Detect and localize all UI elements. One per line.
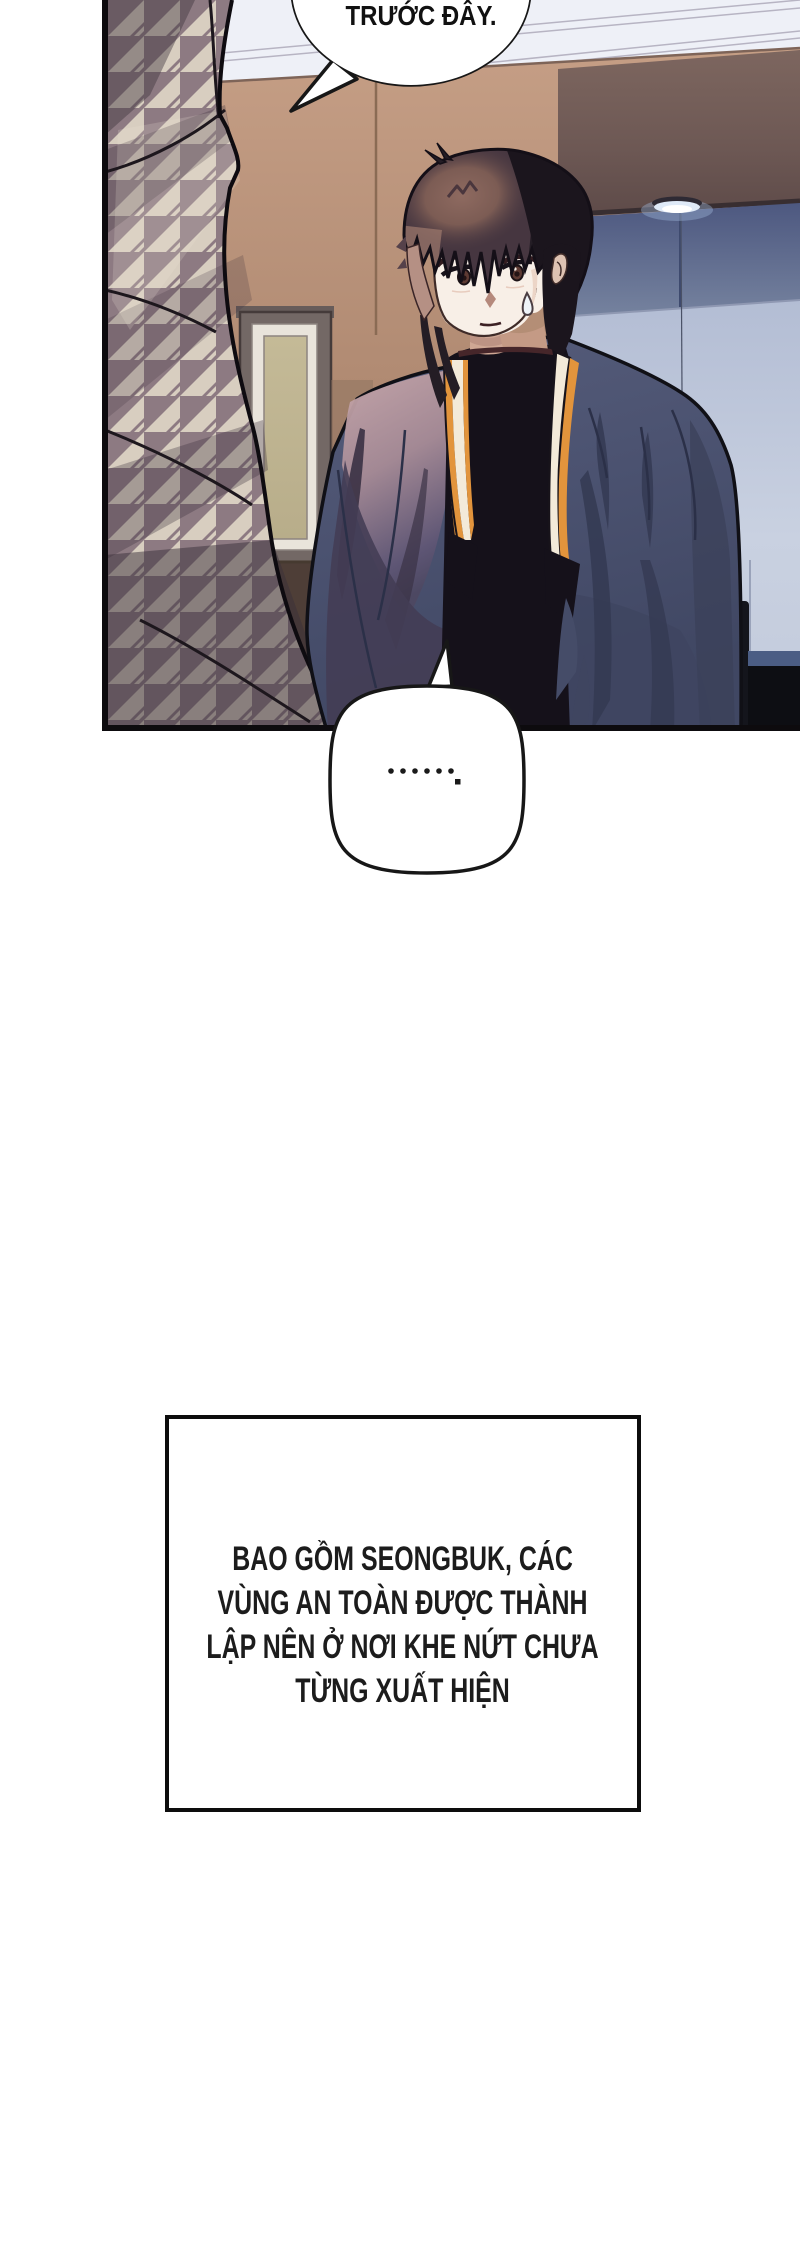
svg-text:TRƯỚC ĐÂY.: TRƯỚC ĐÂY. (346, 0, 497, 31)
